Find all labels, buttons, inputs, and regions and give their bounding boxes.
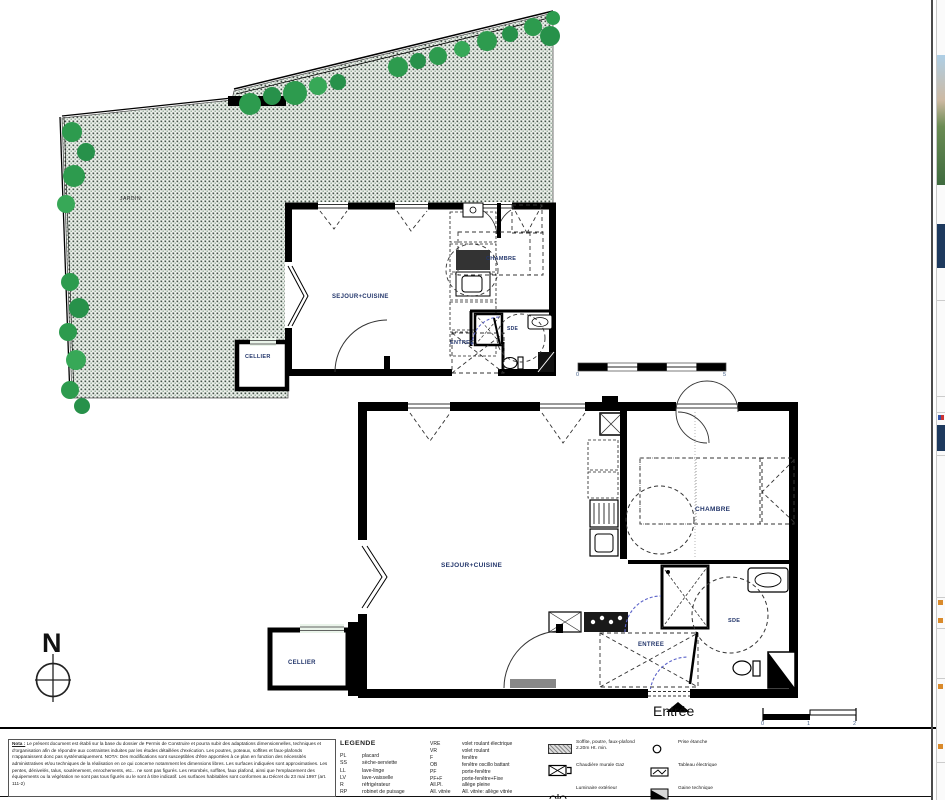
luminaire-icon [548, 786, 576, 800]
legend-row: LVlave-vaisselle [340, 775, 405, 782]
tableau-electrique-icon [650, 763, 678, 782]
legend-row: Tableau électrique [650, 763, 742, 782]
room-label-entree-apt1: ENTREE [450, 340, 474, 346]
page-right-border [931, 0, 933, 800]
floor-plan-page: JARDIN SEJOUR+CUISINE CHAMBRE ENTREE SDE… [0, 0, 945, 800]
floor-plan-drawing [0, 0, 945, 730]
sliver-bullet-icon [938, 600, 943, 605]
legend-row: All.Pl.allège pleine [430, 782, 512, 789]
legend-row: RProbinet de puisage [340, 789, 405, 796]
room-label-sde-apt2: SDE [728, 618, 740, 624]
legend-row: Rréfrigérateur [340, 782, 405, 789]
legend-row: VRvolet roulant [430, 748, 512, 755]
soffite-hatch-icon [548, 740, 576, 759]
sliver-bullet-icon [938, 618, 943, 623]
room-label-entree-apt2: ENTREE [638, 642, 664, 648]
legend-row: Soffite, poutre, faux-plafond 2.20m Ht. … [548, 740, 638, 759]
legend-row: Ffenêtre [430, 755, 512, 762]
room-label-sejour-cuisine-apt1: SEJOUR+CUISINE [332, 294, 389, 300]
gaine-technique-icon [650, 786, 678, 800]
sliver-photo-thumbnail[interactable] [937, 55, 945, 185]
sliver-divider [936, 597, 945, 598]
scale-main-start: 0 [576, 372, 579, 378]
sliver-bullet-icon [938, 744, 943, 749]
room-label-cellier-apt2: CELLIER [288, 660, 316, 666]
sliver-nav-bar-1[interactable] [937, 224, 945, 268]
room-label-cellier-apt1: CELLIER [245, 354, 271, 360]
legend-row: Luminaire extérieur [548, 786, 638, 800]
sliver-divider [936, 412, 945, 413]
legend-row: PFporte-fenêtre [430, 769, 512, 776]
prise-etanche-icon [650, 740, 678, 759]
sliver-nav-bar-2[interactable] [937, 425, 945, 451]
legend-row: SSsèche-serviette [340, 760, 405, 767]
room-label-sejour-cuisine-apt2: SEJOUR+CUISINE [441, 562, 502, 569]
legend-row: OBfenêtre oscillo battant [430, 762, 512, 769]
room-label-chambre-apt1: CHAMBRE [486, 256, 516, 262]
north-label: N [42, 628, 62, 659]
sliver-flag-icon [938, 415, 944, 420]
sliver-divider [936, 455, 945, 456]
legend-row: Prise étanche [650, 740, 742, 759]
nota-body: Le présent document est établi sur la ba… [12, 741, 327, 786]
sliver-divider [936, 300, 945, 301]
nota-title: Nota : [12, 741, 25, 746]
scale-bar-main [578, 363, 726, 371]
legend-row: PF+Fporte-fenêtre+Fixe [430, 776, 512, 783]
room-label-chambre-apt2: CHAMBRE [695, 506, 730, 513]
legend-row: PLplacard [340, 753, 405, 760]
legend-row: Gaine technique [650, 786, 742, 800]
scale-main-end: 5 [723, 372, 726, 378]
legend-symbols-a: Soffite, poutre, faux-plafond 2.20m Ht. … [548, 740, 638, 800]
apartment-2 [270, 381, 795, 712]
sliver-divider [936, 678, 945, 679]
room-label-sde-apt1: SDE [507, 326, 518, 332]
chaudiere-icon [548, 763, 576, 782]
room-label-jardin: JARDIN [120, 196, 141, 202]
legend-title: LEGENDE [340, 740, 405, 747]
sliver-bullet-icon [938, 684, 943, 689]
north-compass-icon [35, 654, 71, 702]
legend-row: VREvolet roulant électrique [430, 741, 512, 748]
sliver-divider [936, 396, 945, 397]
legend-symbols-b: Prise étanche Tableau électrique Gaine t… [650, 740, 742, 800]
entrance-label: Entrée [653, 703, 694, 719]
sliver-divider [936, 628, 945, 629]
sliver-divider [936, 762, 945, 763]
scale-bar-small [763, 708, 856, 721]
legend-abbreviations: LEGENDE PLplacard SSsèche-serviette LLla… [340, 740, 405, 797]
legend-openings: VREvolet roulant électrique VRvolet roul… [430, 741, 512, 796]
legend-row: LLlave-linge [340, 768, 405, 775]
legend-row: All. vitréeAll. vitrée: allège vitrée [430, 789, 512, 796]
legend-row: Chaudière murale Gaz [548, 763, 638, 782]
nota-text-box: Nota : Le présent document est établi su… [8, 739, 336, 797]
title-block-separator [0, 727, 945, 729]
